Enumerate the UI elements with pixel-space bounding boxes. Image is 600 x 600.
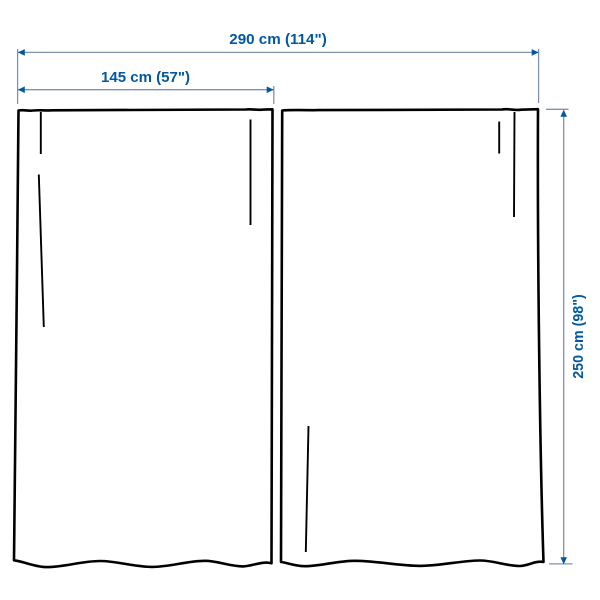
svg-text:145 cm (57"): 145 cm (57")	[101, 69, 190, 86]
svg-text:290 cm (114"): 290 cm (114")	[229, 31, 327, 48]
svg-text:250 cm (98"): 250 cm (98")	[570, 294, 587, 379]
